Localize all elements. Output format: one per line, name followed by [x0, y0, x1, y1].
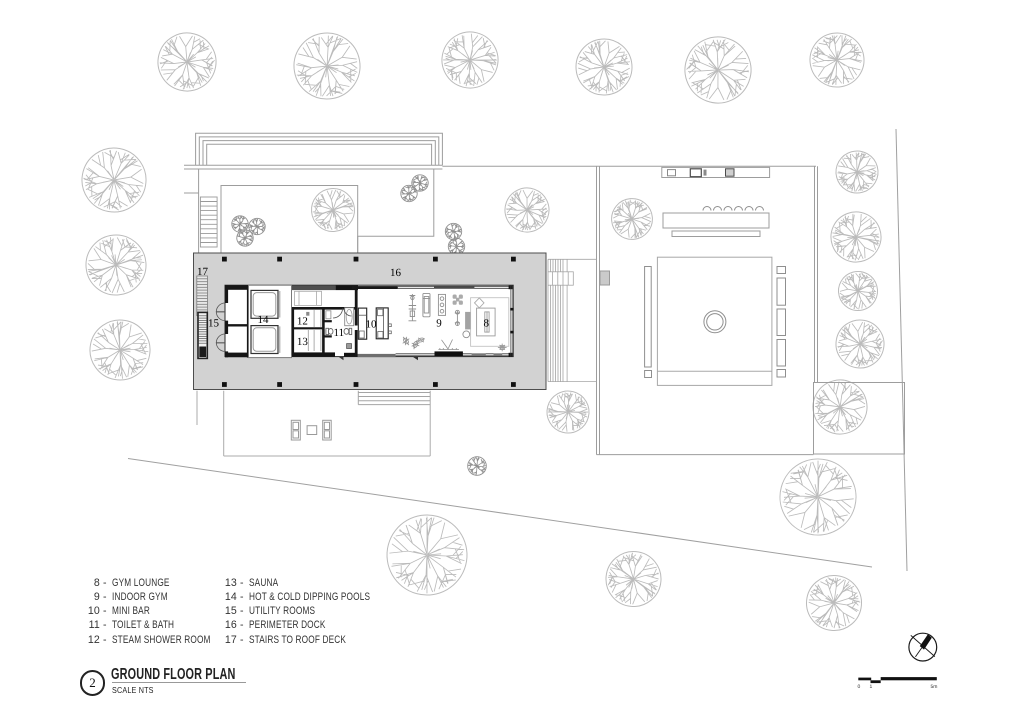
svg-text:0: 0 — [858, 684, 861, 690]
svg-text:17: 17 — [197, 266, 209, 278]
svg-text:10: 10 — [366, 319, 378, 331]
svg-text:5m: 5m — [931, 684, 938, 690]
svg-text:14: 14 — [258, 314, 270, 326]
svg-text:1: 1 — [870, 684, 873, 690]
svg-text:16: 16 — [390, 267, 402, 279]
svg-text:11: 11 — [334, 327, 345, 339]
svg-text:12: 12 — [297, 315, 308, 327]
svg-text:8: 8 — [484, 318, 490, 330]
svg-text:13: 13 — [297, 336, 309, 348]
svg-text:15: 15 — [208, 317, 220, 329]
svg-text:9: 9 — [436, 318, 442, 330]
